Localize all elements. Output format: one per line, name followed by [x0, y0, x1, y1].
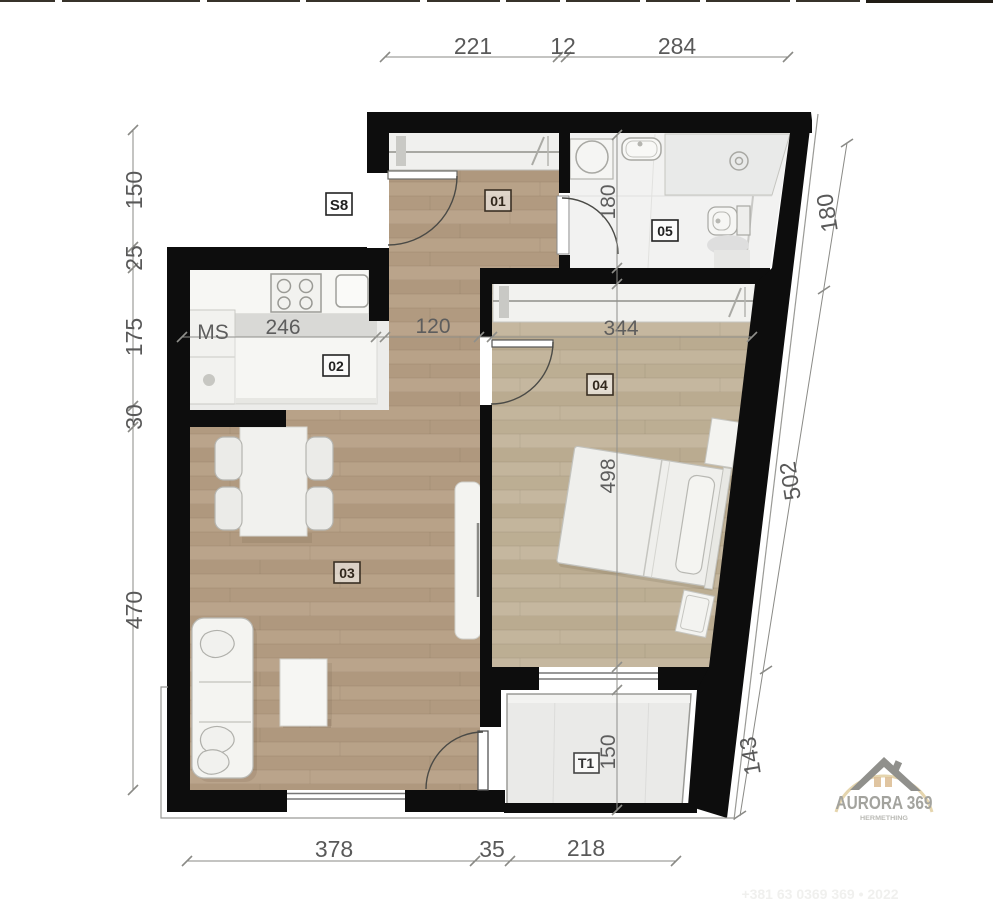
svg-text:AURORA 369: AURORA 369	[836, 793, 933, 813]
svg-text:221: 221	[454, 33, 492, 59]
svg-text:04: 04	[592, 377, 608, 393]
svg-text:T1: T1	[578, 755, 595, 771]
svg-text:25: 25	[121, 245, 147, 271]
svg-text:02: 02	[328, 358, 344, 374]
svg-text:05: 05	[657, 223, 673, 239]
svg-text:120: 120	[415, 315, 450, 338]
svg-text:S8: S8	[330, 197, 348, 214]
svg-text:470: 470	[121, 591, 147, 629]
svg-text:175: 175	[121, 318, 147, 356]
svg-text:01: 01	[490, 193, 506, 209]
svg-text:12: 12	[550, 33, 576, 59]
svg-text:246: 246	[265, 316, 300, 339]
svg-text:344: 344	[603, 317, 638, 340]
svg-text:MS: MS	[197, 321, 229, 344]
svg-text:498: 498	[597, 458, 620, 493]
svg-text:218: 218	[567, 835, 605, 861]
svg-text:180: 180	[597, 184, 620, 219]
svg-text:03: 03	[339, 565, 355, 581]
svg-text:30: 30	[121, 404, 147, 430]
svg-text:35: 35	[479, 836, 505, 862]
svg-text:+381 63 0369 369 • 2022: +381 63 0369 369 • 2022	[741, 886, 898, 900]
svg-text:150: 150	[597, 734, 620, 769]
svg-text:HERMETHING: HERMETHING	[860, 815, 908, 822]
svg-text:150: 150	[121, 171, 147, 209]
svg-text:284: 284	[658, 33, 697, 59]
svg-text:378: 378	[315, 836, 353, 862]
